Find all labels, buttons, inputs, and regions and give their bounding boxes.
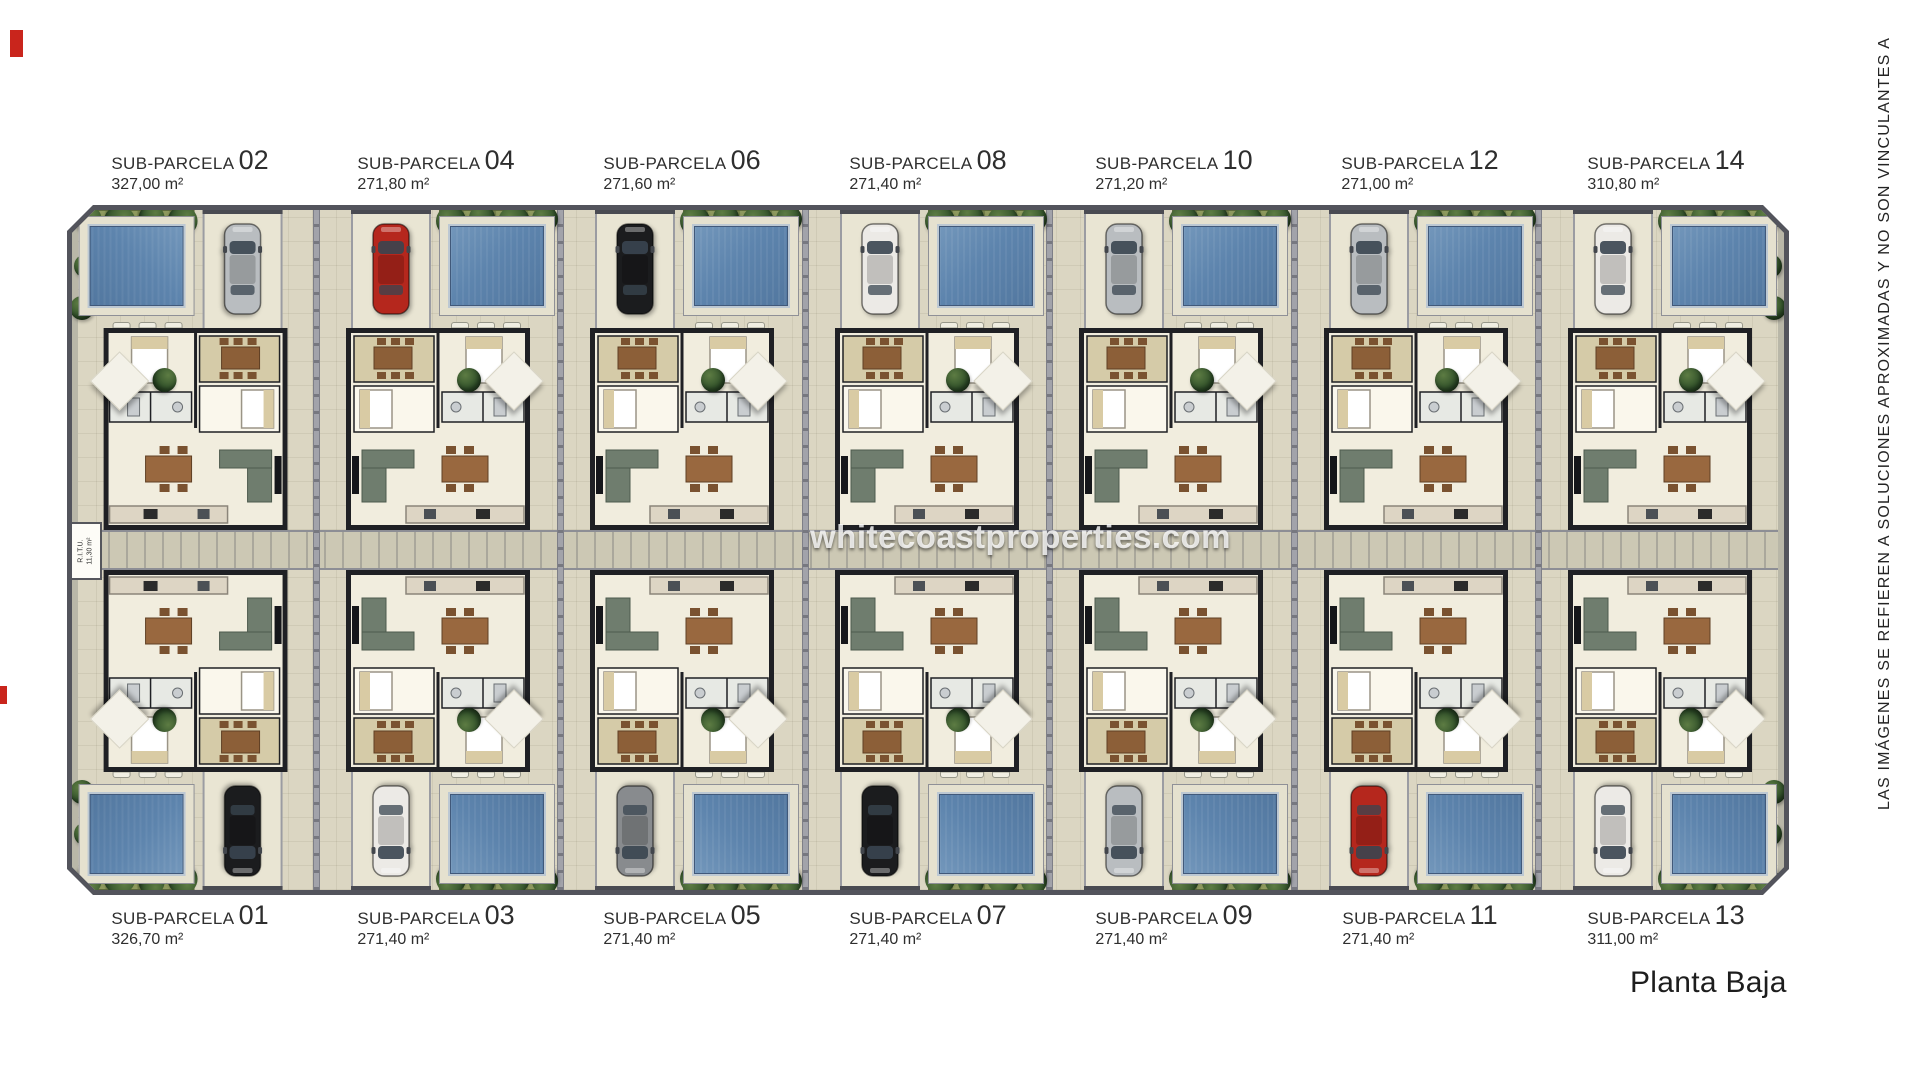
parcel-08 xyxy=(806,210,1051,530)
villa xyxy=(835,328,1019,530)
parcel-label-06: SUB-PARCELA 06271,60 m² xyxy=(559,146,805,194)
parcel-area: 271,20 m² xyxy=(1095,177,1252,194)
parcel-label-text: SUB-PARCELA xyxy=(111,154,238,173)
gate xyxy=(203,886,283,890)
parcel-label-10: SUB-PARCELA 10271,20 m² xyxy=(1051,146,1297,194)
parcel-label-text: SUB-PARCELA xyxy=(111,909,238,928)
parcel-label-inner: SUB-PARCELA 01326,70 m² xyxy=(111,901,268,949)
parcel-label-inner: SUB-PARCELA 05271,40 m² xyxy=(603,901,760,949)
car xyxy=(860,784,900,878)
gate xyxy=(203,210,283,214)
parcel-area: 326,70 m² xyxy=(111,932,268,949)
tree xyxy=(153,368,177,392)
parcel-number: 14 xyxy=(1715,145,1745,175)
gate xyxy=(1329,886,1409,890)
tree xyxy=(701,708,725,732)
pool xyxy=(1426,792,1524,876)
parcel-number: 06 xyxy=(731,145,761,175)
tree xyxy=(946,368,970,392)
villa xyxy=(1079,328,1263,530)
pool xyxy=(937,792,1035,876)
parcel-area: 271,40 m² xyxy=(849,177,1006,194)
gate xyxy=(351,886,431,890)
villa xyxy=(1079,570,1263,772)
tree xyxy=(1679,708,1703,732)
parcel-04 xyxy=(317,210,562,530)
tree xyxy=(153,708,177,732)
pool xyxy=(1670,792,1768,876)
gate xyxy=(595,210,675,214)
parcel-number: 11 xyxy=(1470,900,1498,930)
parcel-label-inner: SUB-PARCELA 14310,80 m² xyxy=(1587,146,1744,194)
parcel-area: 271,40 m² xyxy=(357,932,514,949)
villa xyxy=(1324,570,1508,772)
car xyxy=(223,784,263,878)
parcel-label-08: SUB-PARCELA 08271,40 m² xyxy=(805,146,1051,194)
parcel-number: 01 xyxy=(239,900,269,930)
parcel-label-text: SUB-PARCELA xyxy=(1587,154,1714,173)
parcel-number: 07 xyxy=(977,900,1007,930)
pool xyxy=(88,792,186,876)
side-disclaimer: LAS IMÁGENES SE REFIEREN A SOLUCIONES AP… xyxy=(1876,0,1894,810)
parcel-label-inner: SUB-PARCELA 11271,40 m² xyxy=(1342,901,1497,949)
parcel-number: 08 xyxy=(977,145,1007,175)
tree xyxy=(701,368,725,392)
parcel-area: 271,80 m² xyxy=(357,177,514,194)
gate xyxy=(1573,886,1653,890)
parcel-area: 271,40 m² xyxy=(849,932,1006,949)
floorplan-page: { "page": { "watermark": "whitecoastprop… xyxy=(0,0,1920,1080)
pool xyxy=(1670,224,1768,308)
gate xyxy=(840,210,920,214)
villa xyxy=(346,328,530,530)
car xyxy=(371,222,411,316)
gate xyxy=(595,886,675,890)
parcel-label-text: SUB-PARCELA xyxy=(357,909,484,928)
car xyxy=(860,222,900,316)
parcel-area: 311,00 m² xyxy=(1587,932,1744,949)
villa xyxy=(1568,328,1752,530)
parcel-label-text: SUB-PARCELA xyxy=(1342,909,1469,928)
villa xyxy=(104,328,288,530)
tree xyxy=(1435,368,1459,392)
car xyxy=(1349,222,1389,316)
parcel-label-09: SUB-PARCELA 09271,40 m² xyxy=(1051,901,1297,949)
parcel-13 xyxy=(1539,570,1784,890)
parcel-area: 271,00 m² xyxy=(1341,177,1498,194)
pool xyxy=(448,792,546,876)
parcel-label-07: SUB-PARCELA 07271,40 m² xyxy=(805,901,1051,949)
parcel-label-11: SUB-PARCELA 11271,40 m² xyxy=(1297,901,1543,949)
ritu-box: R.I.T.U. 11,30 m² xyxy=(72,522,102,580)
parcel-area: 310,80 m² xyxy=(1587,177,1744,194)
ritu-area: 11,30 m² xyxy=(86,537,95,564)
parcel-area: 271,40 m² xyxy=(603,932,760,949)
parcel-label-text: SUB-PARCELA xyxy=(849,154,976,173)
parcel-label-inner: SUB-PARCELA 08271,40 m² xyxy=(849,146,1006,194)
parcel-label-text: SUB-PARCELA xyxy=(1587,909,1714,928)
parcel-07 xyxy=(806,570,1051,890)
watermark: whitecoastproperties.com xyxy=(810,518,1130,556)
parcel-number: 12 xyxy=(1469,145,1499,175)
parcel-09 xyxy=(1050,570,1295,890)
parcel-number: 02 xyxy=(239,145,269,175)
parcel-number: 04 xyxy=(485,145,515,175)
parcel-label-text: SUB-PARCELA xyxy=(357,154,484,173)
villa xyxy=(346,570,530,772)
villa xyxy=(835,570,1019,772)
parcel-label-text: SUB-PARCELA xyxy=(603,154,730,173)
parcel-number: 05 xyxy=(731,900,761,930)
gate xyxy=(840,886,920,890)
parcel-label-text: SUB-PARCELA xyxy=(1095,909,1222,928)
red-edge-mark-left xyxy=(0,686,7,704)
parcel-area: 271,40 m² xyxy=(1095,932,1252,949)
car xyxy=(223,222,263,316)
villa xyxy=(590,328,774,530)
parcel-number: 03 xyxy=(485,900,515,930)
villa xyxy=(1324,328,1508,530)
gate xyxy=(1084,886,1164,890)
pool xyxy=(88,224,186,308)
parcel-label-inner: SUB-PARCELA 02327,00 m² xyxy=(111,146,268,194)
villa xyxy=(104,570,288,772)
parcel-label-14: SUB-PARCELA 14310,80 m² xyxy=(1543,146,1789,194)
parcel-area: 271,40 m² xyxy=(1342,932,1497,949)
parcel-label-03: SUB-PARCELA 03271,40 m² xyxy=(313,901,559,949)
tree xyxy=(457,708,481,732)
parcel-area: 271,60 m² xyxy=(603,177,760,194)
parcel-label-02: SUB-PARCELA 02327,00 m² xyxy=(67,146,313,194)
parcel-number: 09 xyxy=(1223,900,1253,930)
ritu-text: R.I.T.U. 11,30 m² xyxy=(77,537,95,564)
tree xyxy=(1679,368,1703,392)
parcel-label-text: SUB-PARCELA xyxy=(603,909,730,928)
red-edge-mark-top xyxy=(10,30,23,57)
tree xyxy=(457,368,481,392)
gate xyxy=(1329,210,1409,214)
gate xyxy=(1573,210,1653,214)
pool xyxy=(448,224,546,308)
parcel-02 xyxy=(72,210,317,530)
parcel-05 xyxy=(561,570,806,890)
parcel-area: 327,00 m² xyxy=(111,177,268,194)
parcel-label-01: SUB-PARCELA 01326,70 m² xyxy=(67,901,313,949)
car xyxy=(1593,784,1633,878)
car xyxy=(1349,784,1389,878)
villa xyxy=(1568,570,1752,772)
parcel-14 xyxy=(1539,210,1784,530)
parcel-label-inner: SUB-PARCELA 04271,80 m² xyxy=(357,146,514,194)
parcel-label-inner: SUB-PARCELA 12271,00 m² xyxy=(1341,146,1498,194)
parcel-label-text: SUB-PARCELA xyxy=(1341,154,1468,173)
parcel-10 xyxy=(1050,210,1295,530)
gate xyxy=(1084,210,1164,214)
plan-title: Planta Baja xyxy=(1630,966,1870,1000)
car xyxy=(1593,222,1633,316)
pool xyxy=(1181,224,1279,308)
parcel-number: 10 xyxy=(1223,145,1253,175)
car xyxy=(371,784,411,878)
pool xyxy=(1426,224,1524,308)
parcel-label-05: SUB-PARCELA 05271,40 m² xyxy=(559,901,805,949)
parcel-label-inner: SUB-PARCELA 06271,60 m² xyxy=(603,146,760,194)
parcel-label-inner: SUB-PARCELA 03271,40 m² xyxy=(357,901,514,949)
parcel-label-inner: SUB-PARCELA 13311,00 m² xyxy=(1587,901,1744,949)
parcel-label-04: SUB-PARCELA 04271,80 m² xyxy=(313,146,559,194)
pool xyxy=(937,224,1035,308)
parcel-label-inner: SUB-PARCELA 07271,40 m² xyxy=(849,901,1006,949)
tree xyxy=(1190,368,1214,392)
pool xyxy=(1181,792,1279,876)
parcel-number: 13 xyxy=(1715,900,1745,930)
tree xyxy=(946,708,970,732)
parcel-label-text: SUB-PARCELA xyxy=(1095,154,1222,173)
gate xyxy=(351,210,431,214)
car xyxy=(1104,784,1144,878)
car xyxy=(1104,222,1144,316)
parcel-06 xyxy=(561,210,806,530)
car xyxy=(615,222,655,316)
parcel-label-inner: SUB-PARCELA 10271,20 m² xyxy=(1095,146,1252,194)
tree xyxy=(1435,708,1459,732)
parcel-label-inner: SUB-PARCELA 09271,40 m² xyxy=(1095,901,1252,949)
parcel-label-12: SUB-PARCELA 12271,00 m² xyxy=(1297,146,1543,194)
car xyxy=(615,784,655,878)
parcel-01 xyxy=(72,570,317,890)
pool xyxy=(692,792,790,876)
tree xyxy=(1190,708,1214,732)
parcel-label-text: SUB-PARCELA xyxy=(849,909,976,928)
parcel-11 xyxy=(1295,570,1540,890)
parcel-label-13: SUB-PARCELA 13311,00 m² xyxy=(1543,901,1789,949)
parcel-03 xyxy=(317,570,562,890)
villa xyxy=(590,570,774,772)
parcel-12 xyxy=(1295,210,1540,530)
pool xyxy=(692,224,790,308)
